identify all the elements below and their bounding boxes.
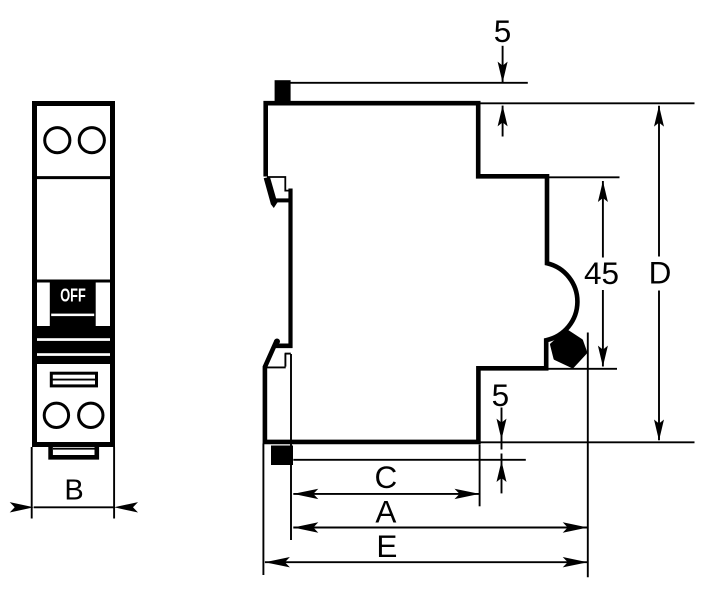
svg-text:5: 5: [492, 377, 510, 413]
svg-text:E: E: [376, 528, 397, 564]
svg-text:5: 5: [494, 13, 512, 49]
svg-text:C: C: [375, 459, 398, 495]
svg-text:OFF: OFF: [60, 285, 86, 306]
svg-text:B: B: [64, 474, 83, 506]
svg-text:45: 45: [584, 255, 619, 291]
svg-text:D: D: [649, 255, 672, 291]
svg-text:A: A: [375, 493, 396, 529]
